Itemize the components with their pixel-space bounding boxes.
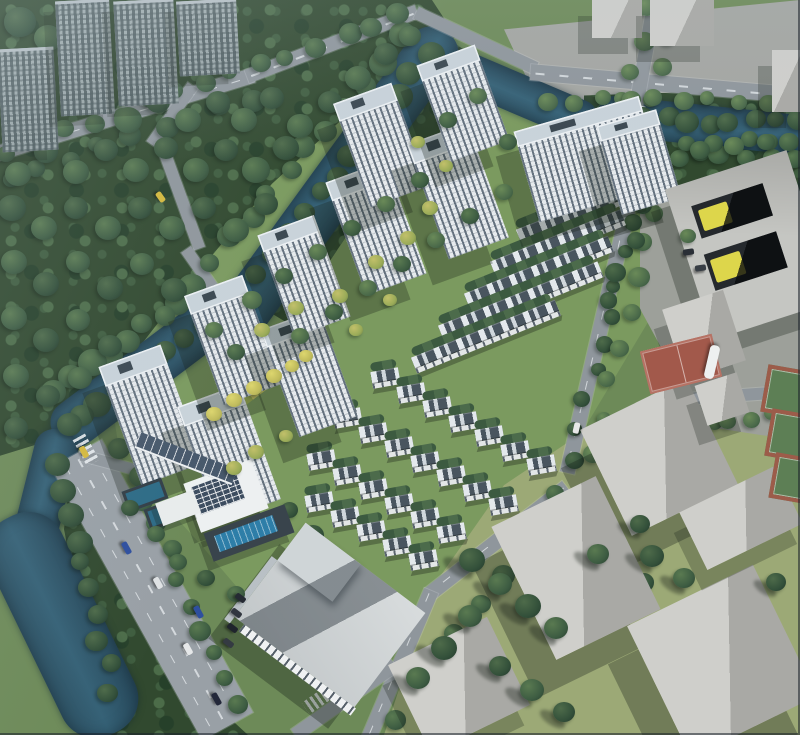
tree [345,66,371,90]
tree [114,107,142,133]
tree [183,158,209,182]
tree [393,256,411,273]
rendering-canvas: Aerial perspective rendering of a reside… [0,0,800,735]
tower-roof-equipment [351,98,365,110]
townhouse-unit [436,521,467,548]
tree [766,573,786,591]
tree [58,503,84,527]
tree [245,265,266,284]
tree [598,371,616,387]
tree [121,500,139,517]
tree [495,184,513,201]
tree [36,385,60,407]
tree [102,654,122,672]
tree [175,108,201,132]
tree [630,515,650,533]
tree [231,108,257,132]
tree [128,197,152,219]
tree [406,667,430,689]
tree [653,58,672,75]
tree [161,278,187,302]
tree [359,280,377,297]
tree [85,631,107,652]
tree [197,570,215,587]
context-tower [113,0,178,106]
tree [228,695,248,714]
tree [459,548,485,572]
tree [0,195,26,221]
tree [757,134,775,151]
tree [339,23,362,44]
tree [66,251,90,273]
tree [489,656,511,676]
tree [275,268,293,285]
tree [95,216,121,240]
tower-roof-equipment [434,59,448,70]
tree [621,64,639,80]
tree [242,157,270,183]
tree [282,161,302,179]
context-tower [0,47,59,153]
tree [690,141,710,159]
tree [538,93,558,111]
tree [565,95,583,112]
tree [343,220,361,237]
tower-roof-equipment [275,230,289,241]
tree [515,594,541,618]
tree [227,344,245,361]
tree [214,139,238,161]
tree [88,605,108,624]
tree [431,636,457,660]
tree [461,208,479,225]
tree [377,196,395,213]
tree [553,702,575,722]
context-tower [176,0,240,77]
tree [399,26,421,46]
tree [717,113,738,132]
tree [206,91,230,113]
tree [205,322,223,339]
townhouse-unit [526,453,557,480]
tower-roof-equipment [614,122,628,132]
tree [66,309,90,331]
tree [746,110,766,128]
tree [189,621,211,641]
tree [604,309,620,324]
tree [242,291,262,309]
tree [587,544,609,564]
tree [131,314,151,333]
tree [57,413,82,436]
tree [469,88,487,105]
tree [97,276,123,300]
tree [67,531,92,554]
tree [223,218,249,242]
tree [64,197,88,219]
tree [385,710,406,729]
tree [260,87,284,109]
tree [1,306,27,330]
tree [63,160,89,184]
tree [3,364,29,388]
tree [724,137,744,155]
tree [192,197,216,219]
car [222,637,234,648]
tree [605,263,625,282]
tree [155,306,176,325]
tree [85,115,105,133]
tree [130,253,154,275]
tree [123,158,149,182]
tree [31,216,57,240]
tree [325,304,343,321]
court-centerline [676,345,686,383]
tree [273,136,299,160]
tree [731,95,747,110]
tree [374,43,398,65]
tower-roof-equipment [202,290,216,302]
tree [196,74,216,92]
tower-roof-equipment [550,118,577,132]
tree [94,139,118,161]
tree [309,244,327,261]
tree [4,417,28,439]
context-tower [55,0,115,116]
tower-roof-equipment [118,361,133,374]
tree [520,679,544,701]
tree [154,137,178,159]
tree [628,267,650,287]
tree [33,328,59,352]
tree [674,92,694,110]
tree [291,328,309,345]
tree [254,193,278,215]
context-massing-block [650,0,714,46]
context-massing-block [772,50,800,112]
tree [50,479,76,503]
context-massing-block [592,0,642,38]
tree [360,18,382,38]
tree [600,292,618,308]
tree [640,545,664,567]
tower-roof-equipment [344,177,359,189]
tree [78,578,99,597]
tree [411,172,429,189]
tree [314,121,337,142]
tree [287,114,313,138]
tree [458,605,482,627]
townhouse-unit [408,548,439,575]
tree [33,272,59,296]
tree [544,617,568,639]
tree [147,526,165,543]
tree [644,89,662,105]
tree [71,553,89,570]
tree [427,232,445,249]
tree [305,38,326,58]
tree [68,367,92,389]
tree [499,134,517,151]
tree [700,91,715,105]
tree [169,554,187,571]
tree [673,568,695,588]
tree [251,54,271,72]
tree [97,684,117,703]
tower-roof-equipment [426,139,441,152]
tree [159,216,185,240]
tree [488,573,512,595]
tree [45,453,70,476]
tree [4,7,36,36]
tree [1,250,27,274]
tree [439,112,457,129]
tree [5,162,31,186]
tree [98,335,122,357]
car [226,622,238,633]
